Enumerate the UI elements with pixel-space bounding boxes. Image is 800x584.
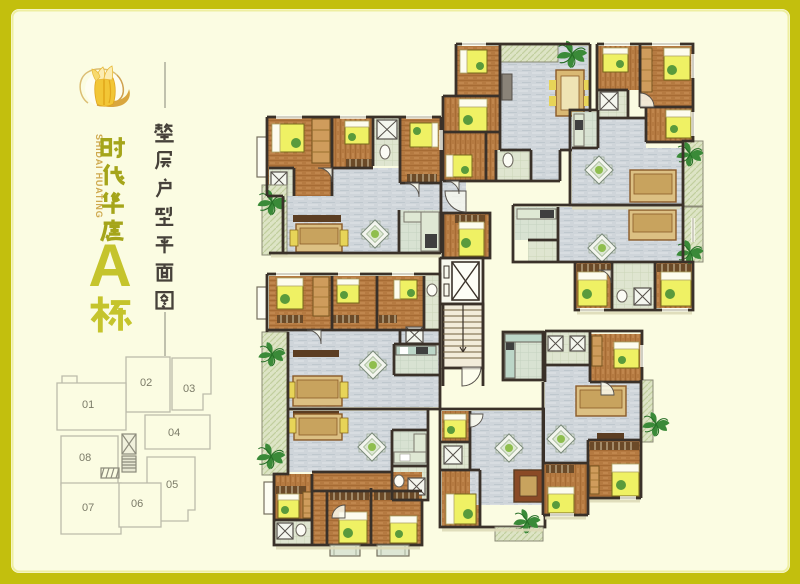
svg-text:01: 01 bbox=[82, 399, 94, 411]
svg-text:04: 04 bbox=[168, 427, 180, 439]
svg-text:07: 07 bbox=[82, 502, 94, 514]
svg-text:05: 05 bbox=[166, 479, 178, 491]
svg-text:A: A bbox=[88, 232, 131, 299]
svg-text:03: 03 bbox=[183, 383, 195, 395]
svg-text:08: 08 bbox=[79, 452, 91, 464]
svg-text:02: 02 bbox=[140, 377, 152, 389]
svg-text:06: 06 bbox=[131, 498, 143, 510]
